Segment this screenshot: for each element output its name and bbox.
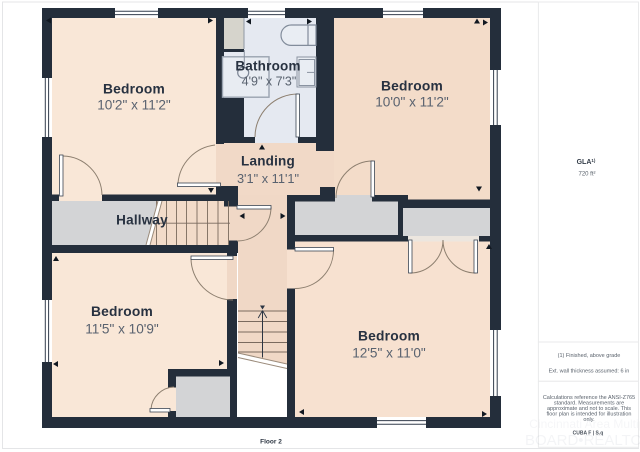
svg-text:Landing: Landing (241, 154, 295, 169)
svg-text:(1) Finished, above grade: (1) Finished, above grade (558, 353, 621, 359)
svg-text:Bedroom: Bedroom (381, 79, 443, 94)
svg-text:Bedroom: Bedroom (358, 329, 420, 344)
svg-text:11'5" x 10'9": 11'5" x 10'9" (85, 322, 159, 337)
svg-text:12'5" x 11'0": 12'5" x 11'0" (352, 346, 426, 361)
svg-text:10'0" x 11'2": 10'0" x 11'2" (375, 95, 449, 110)
svg-text:3'1" x 11'1": 3'1" x 11'1" (237, 171, 299, 186)
svg-text:only.: only. (583, 417, 595, 423)
svg-text:Bedroom: Bedroom (91, 304, 153, 319)
svg-text:Bathroom: Bathroom (235, 59, 300, 74)
svg-text:CUBA F | S.q: CUBA F | S.q (573, 431, 604, 437)
svg-text:Hallway: Hallway (116, 213, 168, 228)
svg-text:4'9" x 7'3": 4'9" x 7'3" (242, 75, 297, 89)
svg-text:Floor 2: Floor 2 (260, 439, 282, 446)
svg-text:Ext. wall thickness assumed: 6: Ext. wall thickness assumed: 6 in (549, 369, 630, 375)
svg-text:10'2" x 11'2": 10'2" x 11'2" (97, 98, 171, 113)
svg-text:Bedroom: Bedroom (103, 82, 165, 97)
svg-text:720 ft²: 720 ft² (578, 172, 595, 178)
